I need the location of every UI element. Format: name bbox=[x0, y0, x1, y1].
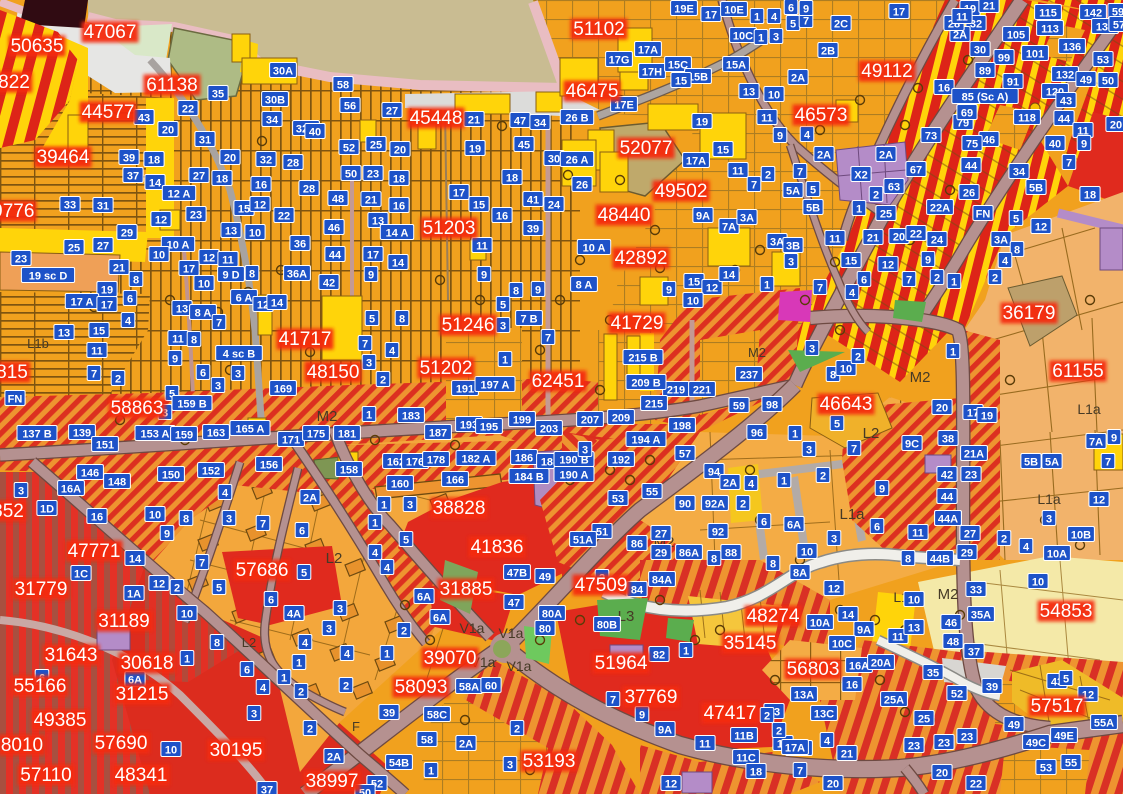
svg-text:27: 27 bbox=[386, 106, 398, 118]
svg-text:43: 43 bbox=[1060, 96, 1072, 108]
svg-text:15: 15 bbox=[845, 256, 857, 268]
svg-text:22A: 22A bbox=[930, 203, 950, 215]
svg-text:21: 21 bbox=[468, 115, 480, 127]
svg-text:165 A: 165 A bbox=[236, 424, 265, 436]
svg-text:3: 3 bbox=[251, 709, 257, 721]
svg-text:59: 59 bbox=[733, 401, 745, 413]
svg-text:2A: 2A bbox=[791, 73, 805, 85]
svg-text:175: 175 bbox=[307, 429, 325, 441]
svg-text:16: 16 bbox=[91, 512, 103, 524]
svg-text:5: 5 bbox=[810, 185, 816, 197]
svg-text:17: 17 bbox=[367, 250, 379, 262]
svg-text:11: 11 bbox=[892, 632, 904, 644]
svg-text:80A: 80A bbox=[542, 609, 562, 621]
svg-text:21: 21 bbox=[983, 1, 995, 13]
svg-text:7: 7 bbox=[797, 766, 803, 778]
svg-text:10E: 10E bbox=[724, 5, 744, 17]
svg-text:40: 40 bbox=[1049, 139, 1061, 151]
svg-text:166: 166 bbox=[446, 475, 464, 487]
svg-text:46: 46 bbox=[328, 223, 340, 235]
svg-text:221: 221 bbox=[693, 385, 711, 397]
svg-text:44: 44 bbox=[1058, 114, 1071, 126]
svg-text:11: 11 bbox=[956, 12, 968, 24]
svg-text:20: 20 bbox=[224, 153, 236, 165]
svg-text:15A: 15A bbox=[726, 60, 746, 72]
svg-text:5: 5 bbox=[1013, 214, 1019, 226]
svg-text:5: 5 bbox=[369, 314, 375, 326]
svg-text:L1a: L1a bbox=[1077, 401, 1101, 417]
svg-text:19: 19 bbox=[981, 411, 993, 423]
svg-text:52077: 52077 bbox=[620, 138, 673, 159]
svg-text:55A: 55A bbox=[1094, 718, 1114, 730]
svg-text:99: 99 bbox=[998, 53, 1010, 65]
svg-text:42: 42 bbox=[323, 278, 335, 290]
svg-text:2: 2 bbox=[380, 375, 386, 387]
svg-text:22: 22 bbox=[182, 104, 194, 116]
svg-text:26 B: 26 B bbox=[565, 113, 588, 125]
svg-text:10: 10 bbox=[249, 228, 261, 240]
svg-text:44: 44 bbox=[965, 161, 978, 173]
svg-text:10A: 10A bbox=[1047, 549, 1067, 561]
svg-text:1: 1 bbox=[184, 654, 190, 666]
svg-text:18: 18 bbox=[506, 173, 518, 185]
svg-text:57517: 57517 bbox=[1031, 696, 1084, 717]
svg-text:23: 23 bbox=[367, 169, 379, 181]
svg-text:47067: 47067 bbox=[84, 22, 137, 43]
svg-text:158: 158 bbox=[340, 465, 358, 477]
svg-text:32: 32 bbox=[260, 155, 272, 167]
svg-text:3: 3 bbox=[1046, 514, 1052, 526]
svg-text:199: 199 bbox=[513, 415, 531, 427]
svg-text:94: 94 bbox=[708, 467, 721, 479]
svg-text:31215: 31215 bbox=[116, 684, 169, 705]
svg-text:7A: 7A bbox=[722, 222, 736, 234]
svg-text:1: 1 bbox=[781, 476, 787, 488]
svg-text:86: 86 bbox=[631, 539, 643, 551]
svg-text:176: 176 bbox=[406, 457, 424, 469]
svg-text:47: 47 bbox=[508, 598, 520, 610]
svg-text:48440: 48440 bbox=[598, 205, 651, 226]
svg-text:1: 1 bbox=[296, 658, 302, 670]
svg-text:16: 16 bbox=[496, 211, 508, 223]
svg-text:9: 9 bbox=[535, 285, 541, 297]
svg-text:49: 49 bbox=[539, 572, 551, 584]
svg-text:194 A: 194 A bbox=[632, 435, 661, 447]
svg-text:237: 237 bbox=[740, 370, 758, 382]
svg-text:51246: 51246 bbox=[442, 315, 495, 336]
svg-text:203: 203 bbox=[540, 424, 558, 436]
svg-text:M2: M2 bbox=[748, 345, 766, 360]
svg-text:25A: 25A bbox=[884, 695, 904, 707]
svg-text:26 A: 26 A bbox=[566, 155, 589, 167]
svg-text:6: 6 bbox=[761, 517, 767, 529]
svg-text:33: 33 bbox=[64, 200, 76, 212]
svg-text:14: 14 bbox=[129, 554, 142, 566]
svg-text:3: 3 bbox=[18, 486, 24, 498]
svg-text:96: 96 bbox=[751, 428, 763, 440]
svg-text:43: 43 bbox=[138, 113, 150, 125]
svg-text:5: 5 bbox=[834, 419, 840, 431]
svg-text:48341: 48341 bbox=[115, 765, 168, 786]
svg-text:14: 14 bbox=[723, 270, 736, 282]
svg-text:8A: 8A bbox=[793, 568, 807, 580]
svg-text:192: 192 bbox=[612, 455, 630, 467]
svg-text:2: 2 bbox=[343, 681, 349, 693]
svg-text:80B: 80B bbox=[597, 620, 617, 632]
svg-text:44B: 44B bbox=[930, 554, 950, 566]
svg-text:49C: 49C bbox=[1026, 738, 1046, 750]
svg-text:44: 44 bbox=[941, 492, 954, 504]
svg-text:39: 39 bbox=[383, 708, 395, 720]
svg-text:23: 23 bbox=[190, 210, 202, 222]
svg-text:V1a: V1a bbox=[460, 620, 485, 636]
svg-text:219: 219 bbox=[667, 385, 685, 397]
svg-text:9: 9 bbox=[803, 4, 809, 16]
svg-text:150: 150 bbox=[162, 470, 180, 482]
svg-text:11: 11 bbox=[476, 241, 488, 253]
svg-text:45: 45 bbox=[518, 140, 530, 152]
svg-text:12: 12 bbox=[203, 253, 215, 265]
svg-text:7: 7 bbox=[1105, 457, 1111, 469]
svg-text:37769: 37769 bbox=[625, 687, 678, 708]
svg-text:6A: 6A bbox=[787, 520, 801, 532]
svg-text:6: 6 bbox=[874, 522, 880, 534]
svg-text:75: 75 bbox=[966, 139, 978, 151]
svg-text:6 A: 6 A bbox=[236, 293, 253, 305]
svg-text:69: 69 bbox=[961, 108, 973, 120]
svg-text:57: 57 bbox=[679, 449, 691, 461]
svg-text:39: 39 bbox=[527, 224, 539, 236]
svg-text:4: 4 bbox=[302, 638, 309, 650]
svg-text:4: 4 bbox=[748, 479, 755, 491]
svg-text:17H: 17H bbox=[642, 67, 662, 79]
svg-text:4: 4 bbox=[389, 346, 396, 358]
svg-text:19: 19 bbox=[101, 285, 113, 297]
svg-text:V1a: V1a bbox=[507, 658, 532, 674]
svg-text:20: 20 bbox=[1110, 120, 1122, 132]
svg-text:10: 10 bbox=[840, 364, 852, 376]
svg-text:198: 198 bbox=[673, 421, 691, 433]
svg-text:38828: 38828 bbox=[433, 498, 486, 519]
svg-text:34: 34 bbox=[266, 115, 279, 127]
svg-text:1: 1 bbox=[950, 347, 956, 359]
svg-text:1: 1 bbox=[281, 673, 287, 685]
svg-text:4 sc B: 4 sc B bbox=[223, 349, 255, 361]
svg-text:17A: 17A bbox=[785, 743, 805, 755]
svg-text:25: 25 bbox=[370, 140, 382, 152]
svg-text:10: 10 bbox=[801, 547, 813, 559]
svg-text:34: 34 bbox=[1013, 167, 1026, 179]
svg-text:57110: 57110 bbox=[20, 765, 71, 786]
svg-text:L2: L2 bbox=[242, 635, 256, 650]
svg-text:1: 1 bbox=[372, 518, 378, 530]
svg-text:2A: 2A bbox=[817, 150, 831, 162]
svg-text:2A: 2A bbox=[327, 752, 341, 764]
svg-text:7: 7 bbox=[545, 333, 551, 345]
svg-text:2: 2 bbox=[873, 190, 879, 202]
svg-text:30: 30 bbox=[974, 45, 986, 57]
svg-text:58A: 58A bbox=[459, 682, 479, 694]
svg-text:51964: 51964 bbox=[595, 653, 648, 674]
svg-text:171: 171 bbox=[282, 435, 300, 447]
svg-text:30618: 30618 bbox=[121, 653, 174, 674]
svg-text:10 A: 10 A bbox=[167, 240, 190, 252]
svg-text:7: 7 bbox=[751, 180, 757, 192]
svg-text:3: 3 bbox=[788, 257, 794, 269]
svg-text:22: 22 bbox=[970, 779, 982, 791]
svg-text:31189: 31189 bbox=[98, 611, 149, 632]
svg-text:1A: 1A bbox=[127, 589, 141, 601]
svg-text:156: 156 bbox=[260, 460, 278, 472]
svg-text:12: 12 bbox=[153, 579, 165, 591]
svg-text:1: 1 bbox=[758, 33, 764, 45]
svg-text:17: 17 bbox=[705, 10, 717, 22]
svg-text:153 A: 153 A bbox=[141, 429, 170, 441]
svg-text:2A: 2A bbox=[459, 739, 473, 751]
svg-text:44: 44 bbox=[329, 250, 342, 262]
svg-text:184 B: 184 B bbox=[514, 472, 543, 484]
svg-text:1: 1 bbox=[764, 280, 770, 292]
svg-text:6: 6 bbox=[861, 275, 867, 287]
svg-text:7: 7 bbox=[817, 283, 823, 295]
svg-text:FN: FN bbox=[8, 394, 23, 406]
svg-text:41836: 41836 bbox=[471, 537, 524, 558]
svg-text:84: 84 bbox=[631, 585, 644, 597]
svg-text:11: 11 bbox=[699, 739, 711, 751]
svg-text:34: 34 bbox=[534, 118, 547, 130]
svg-text:169: 169 bbox=[274, 384, 292, 396]
svg-text:2: 2 bbox=[764, 711, 770, 723]
svg-text:30B: 30B bbox=[265, 95, 285, 107]
svg-text:4: 4 bbox=[1002, 256, 1009, 268]
svg-text:47: 47 bbox=[514, 116, 526, 128]
svg-text:55: 55 bbox=[646, 487, 658, 499]
svg-text:5A: 5A bbox=[1045, 457, 1059, 469]
svg-text:148: 148 bbox=[108, 477, 126, 489]
svg-text:5B: 5B bbox=[1024, 457, 1038, 469]
svg-text:4: 4 bbox=[804, 130, 811, 142]
svg-text:17G: 17G bbox=[609, 55, 630, 67]
svg-text:63: 63 bbox=[888, 182, 900, 194]
svg-text:27: 27 bbox=[193, 171, 205, 183]
svg-text:21: 21 bbox=[867, 233, 879, 245]
svg-text:14 A: 14 A bbox=[386, 228, 409, 240]
svg-text:1: 1 bbox=[792, 429, 798, 441]
svg-text:160: 160 bbox=[391, 479, 409, 491]
svg-text:82: 82 bbox=[653, 650, 665, 662]
svg-text:24: 24 bbox=[931, 235, 944, 247]
svg-text:207: 207 bbox=[581, 415, 599, 427]
svg-text:10B: 10B bbox=[1071, 530, 1091, 542]
svg-text:9: 9 bbox=[481, 270, 487, 282]
svg-text:142: 142 bbox=[1084, 8, 1102, 20]
svg-text:L2: L2 bbox=[326, 550, 343, 567]
svg-text:22: 22 bbox=[278, 211, 290, 223]
svg-text:146: 146 bbox=[81, 468, 99, 480]
svg-text:10C: 10C bbox=[832, 639, 852, 651]
svg-text:7 B: 7 B bbox=[520, 314, 537, 326]
svg-text:36: 36 bbox=[294, 239, 306, 251]
svg-text:8: 8 bbox=[249, 269, 255, 281]
svg-text:53: 53 bbox=[1097, 55, 1109, 67]
svg-text:21A: 21A bbox=[964, 449, 984, 461]
svg-text:48: 48 bbox=[947, 637, 959, 649]
svg-text:18: 18 bbox=[393, 174, 405, 186]
svg-text:8010: 8010 bbox=[1, 735, 43, 756]
svg-text:19 sc D: 19 sc D bbox=[29, 271, 68, 283]
svg-text:13: 13 bbox=[908, 623, 920, 635]
svg-text:20A: 20A bbox=[871, 658, 891, 670]
svg-text:30: 30 bbox=[548, 154, 560, 166]
svg-text:13C: 13C bbox=[814, 709, 834, 721]
svg-text:31885: 31885 bbox=[440, 579, 493, 600]
svg-text:4: 4 bbox=[824, 736, 831, 748]
svg-text:10A: 10A bbox=[810, 618, 830, 630]
svg-text:29: 29 bbox=[121, 228, 133, 240]
svg-text:L1a: L1a bbox=[839, 506, 865, 523]
svg-text:7: 7 bbox=[1066, 158, 1072, 170]
svg-text:5: 5 bbox=[216, 583, 222, 595]
svg-text:4: 4 bbox=[260, 683, 267, 695]
svg-text:23: 23 bbox=[15, 254, 27, 266]
svg-text:46: 46 bbox=[945, 618, 957, 630]
svg-text:27: 27 bbox=[964, 529, 976, 541]
svg-text:53: 53 bbox=[612, 494, 624, 506]
svg-text:8 A: 8 A bbox=[195, 308, 212, 320]
svg-text:3: 3 bbox=[773, 32, 779, 44]
svg-text:101: 101 bbox=[1026, 49, 1044, 61]
svg-text:9: 9 bbox=[172, 354, 178, 366]
svg-text:5: 5 bbox=[301, 568, 307, 580]
svg-text:1: 1 bbox=[502, 355, 508, 367]
svg-text:6: 6 bbox=[788, 3, 794, 15]
svg-text:57686: 57686 bbox=[236, 560, 289, 581]
svg-text:42892: 42892 bbox=[615, 248, 668, 269]
svg-text:4: 4 bbox=[344, 649, 351, 661]
svg-text:86A: 86A bbox=[679, 548, 699, 560]
svg-text:14: 14 bbox=[392, 258, 405, 270]
svg-text:85 (Sc A): 85 (Sc A) bbox=[962, 92, 1009, 104]
svg-text:73: 73 bbox=[925, 131, 937, 143]
svg-text:50: 50 bbox=[345, 169, 357, 181]
svg-text:58: 58 bbox=[421, 735, 433, 747]
svg-text:12: 12 bbox=[882, 260, 894, 272]
svg-text:1: 1 bbox=[856, 204, 862, 216]
svg-text:17: 17 bbox=[453, 188, 465, 200]
svg-text:50635: 50635 bbox=[11, 36, 64, 57]
svg-text:52: 52 bbox=[343, 143, 355, 155]
svg-text:10: 10 bbox=[687, 296, 699, 308]
svg-text:V1a: V1a bbox=[499, 625, 524, 641]
svg-text:10C: 10C bbox=[733, 31, 753, 43]
svg-text:12: 12 bbox=[155, 215, 167, 227]
svg-text:31: 31 bbox=[97, 201, 109, 213]
svg-text:115: 115 bbox=[1039, 8, 1057, 20]
svg-text:3: 3 bbox=[500, 321, 506, 333]
svg-text:50: 50 bbox=[359, 788, 371, 794]
svg-text:5B: 5B bbox=[806, 203, 820, 215]
svg-text:2A: 2A bbox=[303, 493, 317, 505]
svg-text:25: 25 bbox=[68, 243, 80, 255]
svg-text:47B: 47B bbox=[507, 568, 527, 580]
svg-text:9: 9 bbox=[164, 529, 170, 541]
svg-text:3A: 3A bbox=[770, 237, 784, 249]
svg-text:2: 2 bbox=[776, 726, 782, 738]
svg-text:23: 23 bbox=[961, 732, 973, 744]
svg-text:12: 12 bbox=[706, 283, 718, 295]
svg-text:4A: 4A bbox=[287, 609, 301, 621]
svg-text:1: 1 bbox=[384, 649, 390, 661]
svg-text:35145: 35145 bbox=[724, 633, 777, 654]
svg-text:53: 53 bbox=[1040, 763, 1052, 775]
svg-text:11: 11 bbox=[222, 255, 234, 267]
svg-text:54B: 54B bbox=[389, 758, 409, 770]
svg-text:28: 28 bbox=[303, 184, 315, 196]
svg-text:10: 10 bbox=[908, 595, 920, 607]
svg-text:98: 98 bbox=[766, 400, 778, 412]
svg-text:51A: 51A bbox=[573, 535, 593, 547]
svg-text:2A: 2A bbox=[879, 150, 893, 162]
svg-text:159: 159 bbox=[175, 430, 193, 442]
svg-text:L2: L2 bbox=[863, 425, 880, 442]
svg-text:16: 16 bbox=[938, 83, 950, 95]
svg-text:8: 8 bbox=[513, 286, 519, 298]
svg-text:61138: 61138 bbox=[146, 75, 197, 96]
svg-text:215 B: 215 B bbox=[628, 353, 657, 365]
svg-text:9: 9 bbox=[925, 255, 931, 267]
svg-text:30A: 30A bbox=[273, 66, 293, 78]
svg-text:6: 6 bbox=[127, 294, 133, 306]
svg-text:8: 8 bbox=[770, 559, 776, 571]
svg-text:20: 20 bbox=[936, 403, 948, 415]
svg-text:1C: 1C bbox=[74, 569, 88, 581]
svg-text:11: 11 bbox=[172, 334, 184, 346]
svg-text:25: 25 bbox=[918, 714, 930, 726]
svg-text:151: 151 bbox=[96, 440, 114, 452]
svg-text:209 B: 209 B bbox=[631, 378, 660, 390]
svg-text:13: 13 bbox=[58, 328, 70, 340]
svg-text:12: 12 bbox=[828, 584, 840, 596]
svg-text:92A: 92A bbox=[705, 499, 725, 511]
svg-text:19: 19 bbox=[696, 117, 708, 129]
svg-text:3: 3 bbox=[366, 358, 372, 370]
svg-text:6A: 6A bbox=[417, 592, 431, 604]
svg-text:7: 7 bbox=[797, 167, 803, 179]
svg-text:6: 6 bbox=[244, 665, 250, 677]
svg-text:10: 10 bbox=[153, 250, 165, 262]
svg-text:2: 2 bbox=[740, 499, 746, 511]
svg-text:48274: 48274 bbox=[747, 606, 800, 627]
svg-text:5: 5 bbox=[790, 19, 796, 31]
svg-text:L1a: L1a bbox=[1037, 491, 1061, 507]
svg-text:92: 92 bbox=[712, 527, 724, 539]
svg-text:9: 9 bbox=[639, 710, 645, 722]
svg-text:55166: 55166 bbox=[14, 676, 67, 697]
svg-text:18: 18 bbox=[750, 767, 762, 779]
svg-text:20: 20 bbox=[827, 779, 839, 791]
svg-text:50: 50 bbox=[1102, 76, 1114, 88]
svg-text:3B: 3B bbox=[786, 241, 800, 253]
svg-text:48: 48 bbox=[332, 194, 344, 206]
svg-text:3: 3 bbox=[326, 624, 332, 636]
svg-text:55: 55 bbox=[1065, 758, 1077, 770]
svg-text:815: 815 bbox=[0, 362, 28, 383]
svg-text:5: 5 bbox=[1063, 674, 1069, 686]
svg-text:3: 3 bbox=[831, 534, 837, 546]
svg-text:46475: 46475 bbox=[566, 81, 619, 102]
svg-text:23: 23 bbox=[965, 470, 977, 482]
svg-text:3: 3 bbox=[226, 514, 232, 526]
